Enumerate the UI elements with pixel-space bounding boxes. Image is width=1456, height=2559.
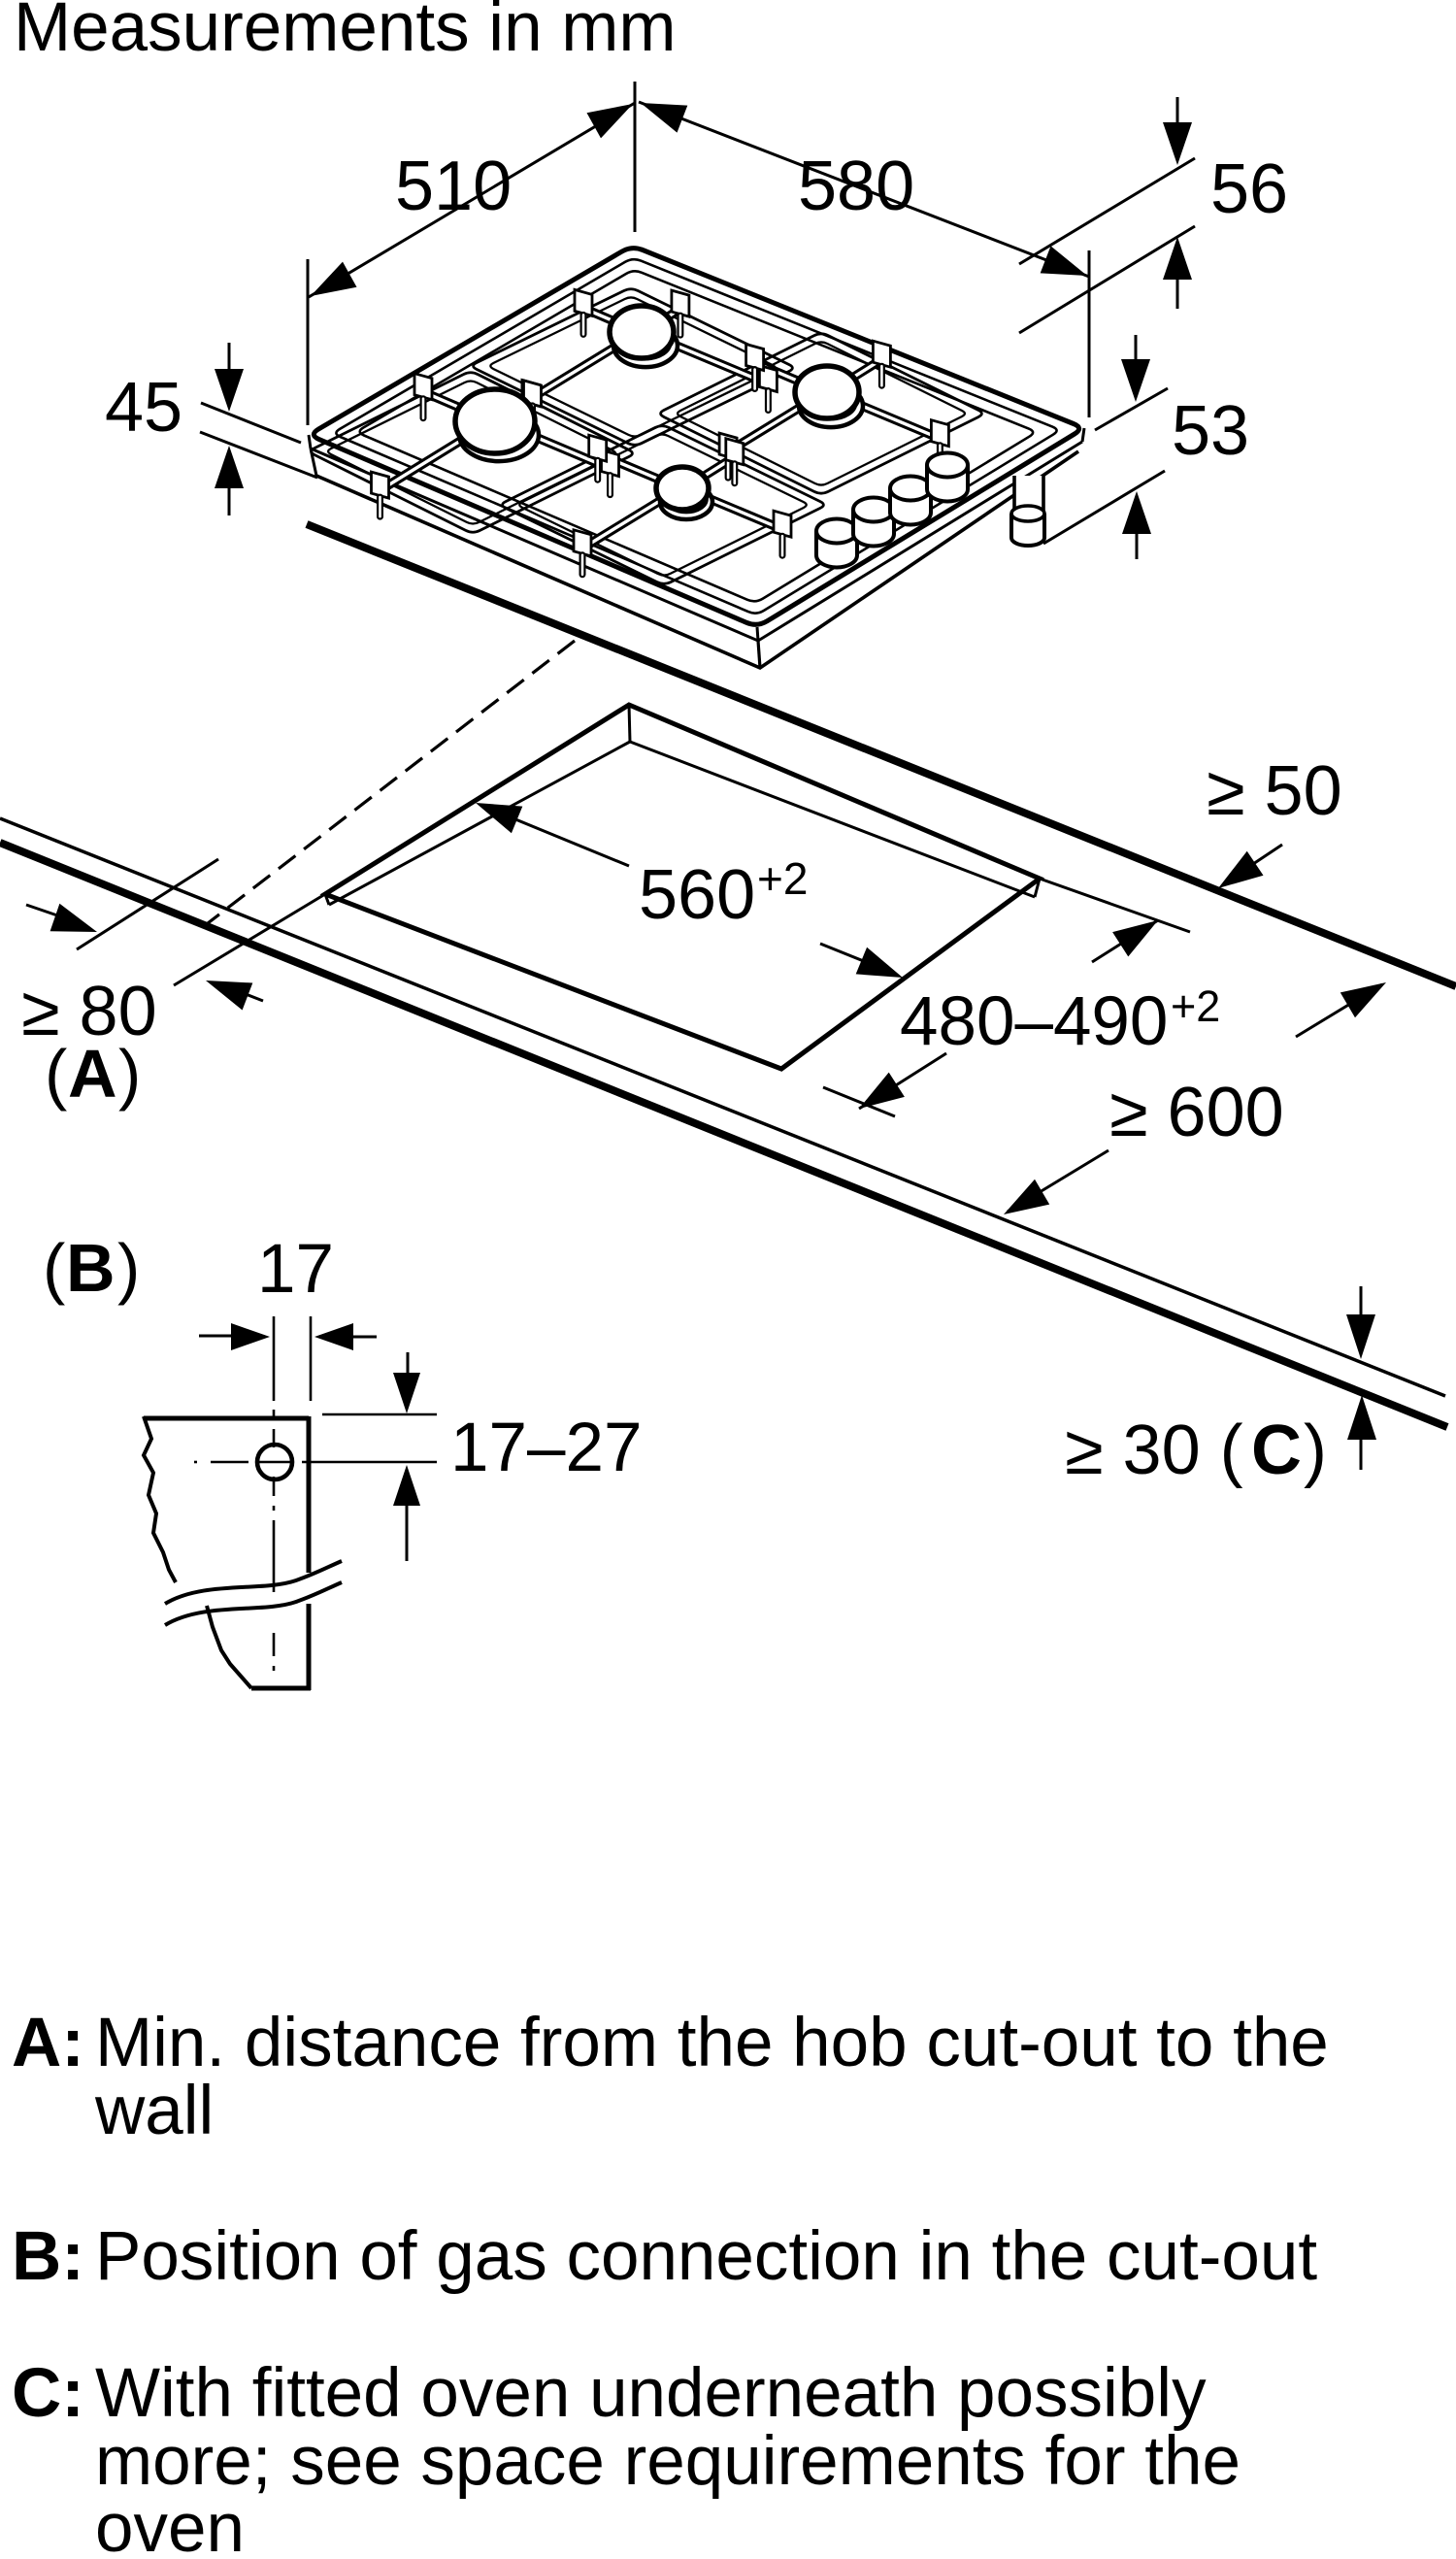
- svg-text:17: 17: [257, 1231, 334, 1308]
- svg-text:Measurements in mm: Measurements in mm: [14, 0, 677, 66]
- svg-text:B:: B:: [12, 2218, 84, 2295]
- svg-text:C: C: [1251, 1412, 1302, 1489]
- svg-text:53: 53: [1172, 392, 1249, 470]
- svg-text:+2: +2: [757, 853, 808, 904]
- svg-text:): ): [118, 1036, 141, 1112]
- svg-text:56: 56: [1210, 150, 1288, 228]
- svg-text:≥ 50: ≥ 50: [1207, 752, 1342, 830]
- svg-text:): ): [117, 1230, 140, 1306]
- svg-text:(: (: [45, 1036, 67, 1112]
- svg-text:480–490: 480–490: [900, 983, 1168, 1060]
- svg-text:more; see space requirements f: more; see space requirements for the: [95, 2423, 1241, 2500]
- svg-text:): ): [1304, 1412, 1327, 1489]
- svg-text:With fitted oven underneath po: With fitted oven underneath possibly: [95, 2355, 1207, 2432]
- svg-text:B: B: [66, 1230, 116, 1306]
- svg-text:wall: wall: [94, 2073, 214, 2149]
- svg-text:(: (: [43, 1230, 65, 1306]
- svg-text:oven: oven: [95, 2490, 245, 2559]
- svg-text:≥ 600: ≥ 600: [1109, 1074, 1284, 1151]
- svg-text:A:: A:: [12, 2005, 84, 2081]
- svg-text:560: 560: [639, 856, 755, 934]
- svg-text:45: 45: [105, 369, 182, 447]
- svg-text:510: 510: [395, 148, 512, 225]
- svg-text:17–27: 17–27: [450, 1410, 642, 1486]
- svg-text:A: A: [68, 1036, 117, 1112]
- svg-text:C:: C:: [12, 2355, 84, 2432]
- svg-text:Min. distance from the hob cut: Min. distance from the hob cut-out to th…: [95, 2005, 1329, 2081]
- svg-text:Position of gas connection in: Position of gas connection in the cut-ou…: [95, 2218, 1317, 2295]
- svg-text:580: 580: [798, 148, 914, 225]
- svg-text:≥ 30 (: ≥ 30 (: [1065, 1412, 1243, 1489]
- svg-text:+2: +2: [1171, 981, 1220, 1031]
